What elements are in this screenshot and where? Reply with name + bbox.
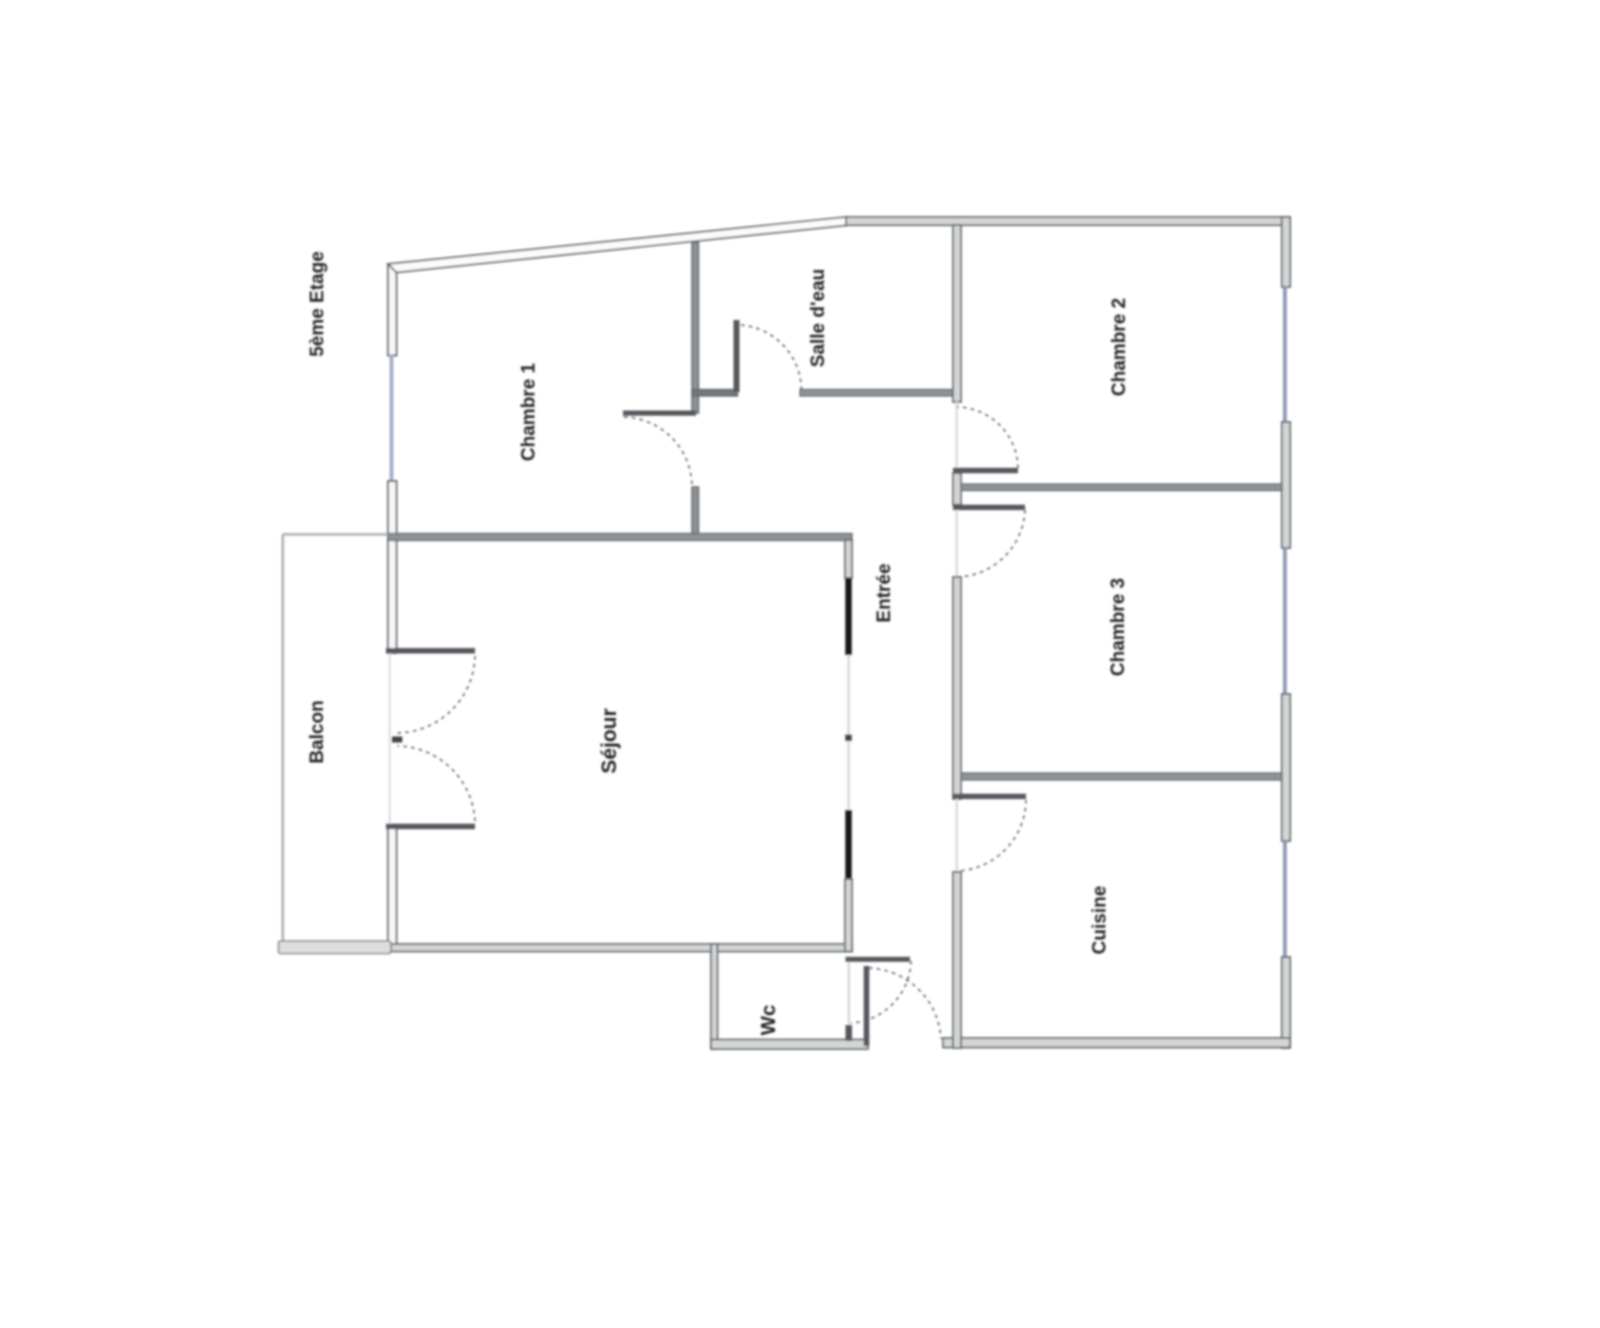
svg-text:Balcon: Balcon — [307, 700, 328, 763]
svg-text:Séjour: Séjour — [598, 708, 621, 773]
svg-text:Cuisine: Cuisine — [1089, 886, 1110, 955]
svg-text:Salle d'eau: Salle d'eau — [808, 269, 829, 368]
svg-text:Wc: Wc — [757, 1005, 780, 1036]
svg-text:Entrée: Entrée — [874, 563, 895, 622]
svg-text:Chambre 3: Chambre 3 — [1108, 578, 1129, 676]
svg-text:Chambre 2: Chambre 2 — [1109, 298, 1130, 396]
svg-text:5ème Etage: 5ème Etage — [307, 251, 328, 357]
svg-text:Chambre 1: Chambre 1 — [518, 362, 539, 461]
